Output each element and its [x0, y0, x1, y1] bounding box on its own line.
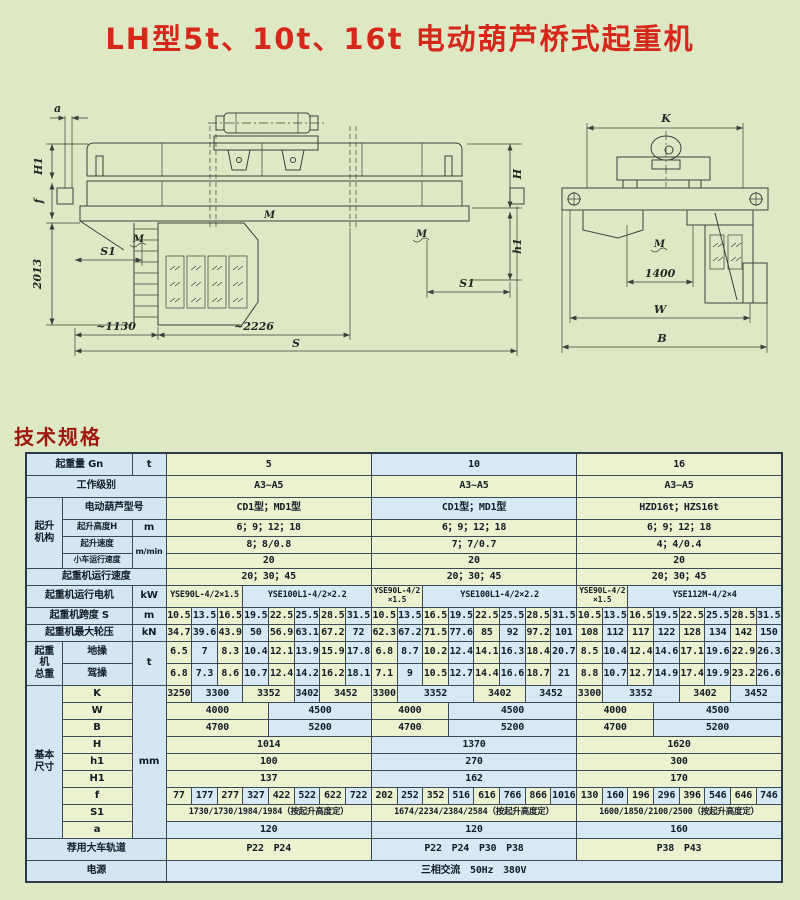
spec-cell-r12c5: 10.7 [243, 663, 269, 685]
spec-cell-r11c12: 6.8 [371, 641, 397, 663]
spec-cell-r10c19: 108 [577, 624, 603, 641]
spec-cell-r10c22: 122 [654, 624, 680, 641]
spec-cell-r10c21: 117 [628, 624, 654, 641]
spec-cell-r15c3: 5200 [269, 719, 372, 736]
spec-cell-r9c5: 16.5 [217, 607, 243, 624]
spec-cell-r21c3: 120 [371, 821, 576, 838]
dim-label-h1: h1 [511, 238, 524, 254]
spec-cell-r6c4: 20 [577, 553, 782, 568]
spec-cell-r12c15: 16.6 [500, 663, 526, 685]
spec-cell-r21c1: a [62, 821, 132, 838]
spec-cell-r11c23: 14.6 [654, 641, 680, 663]
spec-cell-r9c19: 10.5 [577, 607, 603, 624]
spec-cell-r10c8: 63.1 [294, 624, 320, 641]
spec-cell-r13c5: 3300 [192, 685, 243, 702]
spec-cell-r10c1: 起重机最大轮压 [26, 624, 132, 641]
spec-cell-r22c3: P22 P24 P30 P38 [371, 838, 576, 860]
spec-cell-r11c9: 13.9 [294, 641, 320, 663]
spec-cell-r17c2: 100 [166, 753, 371, 770]
spec-cell-r19c4: 277 [217, 787, 243, 804]
spec-cell-r10c17: 97.2 [525, 624, 551, 641]
spec-cell-r2c4: A3~A5 [577, 475, 782, 497]
spec-cell-r12c21: 14.9 [654, 663, 680, 685]
spec-cell-r12c16: 18.7 [525, 663, 551, 685]
page-title: LH型5t、10t、16t 电动葫芦桥式起重机 [0, 16, 800, 58]
spec-cell-r10c5: 43.9 [217, 624, 243, 641]
spec-cell-r16c1: H [62, 736, 132, 753]
spec-cell-r9c12: 13.5 [397, 607, 423, 624]
spec-cell-r9c9: 28.5 [320, 607, 346, 624]
crane-end-view-drawing: K M 1400 W B [548, 95, 798, 405]
spec-cell-r11c13: 8.7 [397, 641, 423, 663]
spec-cell-r19c10: 202 [371, 787, 397, 804]
spec-cell-r8c7: YSE90L-4/2 ×1.5 [577, 585, 628, 607]
spec-cell-r10c18: 101 [551, 624, 577, 641]
spec-cell-r22c1: 荐用大车轨道 [26, 838, 166, 860]
spec-cell-r9c13: 16.5 [423, 607, 449, 624]
spec-cell-r22c2: P22 P24 [166, 838, 371, 860]
spec-cell-r11c24: 17.1 [679, 641, 705, 663]
dim-label-1400: 1400 [645, 267, 676, 280]
spec-cell-r13c8: 3452 [320, 685, 371, 702]
spec-cell-r11c2: 地操 [62, 641, 132, 663]
spec-cell-r19c21: 296 [654, 787, 680, 804]
hoist-trolley [208, 113, 326, 170]
spec-cell-r16c4: 1620 [577, 736, 782, 753]
spec-cell-r20c2: 1730/1730/1984/1984（按起升高度定） [166, 804, 371, 821]
spec-cell-r11c4: 6.5 [166, 641, 192, 663]
spec-cell-r9c7: 22.5 [269, 607, 295, 624]
spec-body: 起重量 Gnt51016工作级别A3~A5A3~A5A3~A5起升 机构电动葫芦… [26, 453, 782, 882]
spec-cell-r12c11: 9 [397, 663, 423, 685]
spec-cell-r19c9: 722 [346, 787, 372, 804]
spec-cell-r11c27: 26.3 [756, 641, 782, 663]
spec-cell-r12c3: 7.3 [192, 663, 218, 685]
spec-cell-r9c18: 31.5 [551, 607, 577, 624]
dim-label-W: W [654, 303, 668, 316]
spec-cell-r9c8: 25.5 [294, 607, 320, 624]
spec-cell-r11c21: 10.4 [602, 641, 628, 663]
spec-cell-r5c2: m/min [132, 536, 166, 568]
spec-cell-r19c16: 866 [525, 787, 551, 804]
spec-cell-r12c18: 8.8 [577, 663, 603, 685]
spec-cell-r12c2: 6.8 [166, 663, 192, 685]
spec-cell-r12c25: 26.6 [756, 663, 782, 685]
spec-cell-r17c3: 270 [371, 753, 576, 770]
dim-label-a: a [54, 102, 61, 115]
spec-cell-r12c20: 12.7 [628, 663, 654, 685]
spec-cell-r11c3: t [132, 641, 166, 685]
spec-cell-r18c4: 170 [577, 770, 782, 787]
spec-cell-r10c10: 72 [346, 624, 372, 641]
spec-cell-r15c1: B [62, 719, 132, 736]
spec-cell-r11c16: 14.1 [474, 641, 500, 663]
spec-cell-r12c6: 12.4 [269, 663, 295, 685]
spec-cell-r5c4: 7；7/0.7 [371, 536, 576, 553]
spec-cell-r19c8: 622 [320, 787, 346, 804]
spec-cell-r19c25: 746 [756, 787, 782, 804]
spec-cell-r17c1: h1 [62, 753, 132, 770]
spec-cell-r19c1: f [62, 787, 132, 804]
spec-cell-r19c3: 177 [192, 787, 218, 804]
spec-cell-r20c3: 1674/2234/2384/2584（按起升高度定） [371, 804, 576, 821]
spec-cell-r4c5: 6；9；12；18 [577, 519, 782, 536]
spec-cell-r9c15: 22.5 [474, 607, 500, 624]
spec-cell-r12c8: 16.2 [320, 663, 346, 685]
spec-cell-r13c9: 3300 [371, 685, 397, 702]
spec-cell-r19c11: 252 [397, 787, 423, 804]
spec-cell-r9c4: 13.5 [192, 607, 218, 624]
spec-cell-r11c25: 19.6 [705, 641, 731, 663]
spec-cell-r4c1: 起升高度H [62, 519, 132, 536]
dim-label-S1-left: S1 [100, 245, 116, 258]
spec-cell-r10c24: 134 [705, 624, 731, 641]
spec-cell-r10c13: 71.5 [423, 624, 449, 641]
spec-cell-r9c24: 25.5 [705, 607, 731, 624]
spec-cell-r10c14: 77.6 [448, 624, 474, 641]
spec-cell-r10c4: 39.6 [192, 624, 218, 641]
dim-label-H1: H1 [32, 157, 45, 176]
spec-cell-r6c1: 小车运行速度 [62, 553, 132, 568]
spec-cell-r2c1: 工作级别 [26, 475, 166, 497]
spec-cell-r11c17: 16.3 [500, 641, 526, 663]
spec-cell-r19c23: 546 [705, 787, 731, 804]
spec-cell-r8c6: YSE100L1-4/2×2.2 [423, 585, 577, 607]
spec-cell-r15c5: 5200 [448, 719, 576, 736]
spec-cell-r11c20: 8.5 [577, 641, 603, 663]
spec-cell-r19c19: 160 [602, 787, 628, 804]
dim-label-S: S [292, 337, 300, 350]
spec-cell-r19c12: 352 [423, 787, 449, 804]
spec-cell-r12c4: 8.6 [217, 663, 243, 685]
spec-cell-r15c7: 5200 [654, 719, 782, 736]
spec-cell-r8c3: YSE90L-4/2×1.5 [166, 585, 243, 607]
spec-cell-r14c4: 4000 [371, 702, 448, 719]
spec-cell-r7c4: 20；30；45 [577, 568, 782, 585]
spec-cell-r20c4: 1600/1850/2100/2500（按起升高度定） [577, 804, 782, 821]
spec-cell-r11c1: 起重 机 总重 [26, 641, 62, 685]
spec-cell-r12c17: 21 [551, 663, 577, 685]
spec-cell-r17c4: 300 [577, 753, 782, 770]
dim-label-2013: 2013 [31, 258, 44, 290]
spec-cell-r14c2: 4000 [166, 702, 269, 719]
spec-cell-r5c3: 8；8/0.8 [166, 536, 371, 553]
spec-cell-r19c6: 422 [269, 787, 295, 804]
spec-cell-r1c3: 5 [166, 453, 371, 475]
spec-cell-r22c4: P38 P43 [577, 838, 782, 860]
spec-cell-r10c25: 142 [731, 624, 757, 641]
spec-cell-r7c3: 20；30；45 [371, 568, 576, 585]
spec-cell-r19c18: 130 [577, 787, 603, 804]
spec-cell-r10c26: 150 [756, 624, 782, 641]
spec-cell-r13c13: 3300 [577, 685, 603, 702]
spec-cell-r11c22: 12.4 [628, 641, 654, 663]
spec-cell-r13c15: 3402 [679, 685, 730, 702]
spec-cell-r10c2: kN [132, 624, 166, 641]
spec-cell-r10c15: 85 [474, 624, 500, 641]
spec-cell-r12c14: 14.4 [474, 663, 500, 685]
spec-cell-r5c5: 4；4/0.4 [577, 536, 782, 553]
page: { "page": { "title": "LH型5t、10t、16t 电动葫芦… [0, 0, 800, 900]
spec-cell-r12c22: 17.4 [679, 663, 705, 685]
spec-cell-r10c9: 67.2 [320, 624, 346, 641]
dim-label-1130: ~1130 [96, 320, 136, 333]
spec-cell-r1c1: 起重量 Gn [26, 453, 132, 475]
spec-cell-r12c9: 18.1 [346, 663, 372, 685]
spec-cell-r11c8: 12.1 [269, 641, 295, 663]
spec-cell-r10c16: 92 [500, 624, 526, 641]
spec-cell-r11c26: 22.9 [731, 641, 757, 663]
spec-cell-r10c20: 112 [602, 624, 628, 641]
spec-cell-r21c2: 120 [166, 821, 371, 838]
spec-cell-r4c2: m [132, 519, 166, 536]
spec-cell-r11c7: 10.4 [243, 641, 269, 663]
spec-cell-r23c2: 三相交流 50Hz 380V [166, 860, 782, 882]
spec-cell-r18c2: 137 [166, 770, 371, 787]
spec-cell-r1c5: 16 [577, 453, 782, 475]
spec-cell-r19c2: 77 [166, 787, 192, 804]
spec-cell-r15c2: 4700 [166, 719, 269, 736]
spec-cell-r19c15: 766 [500, 787, 526, 804]
spec-cell-r14c3: 4500 [269, 702, 372, 719]
spec-cell-r10c23: 128 [679, 624, 705, 641]
spec-cell-r13c4: 3250 [166, 685, 192, 702]
spec-cell-r3c2: 电动葫芦型号 [62, 497, 166, 519]
cabin [134, 223, 258, 325]
spec-cell-r10c11: 62.3 [371, 624, 397, 641]
spec-cell-r12c24: 23.2 [731, 663, 757, 685]
spec-cell-r15c4: 4700 [371, 719, 448, 736]
spec-cell-r19c20: 196 [628, 787, 654, 804]
spec-cell-r5c1: 起升速度 [62, 536, 132, 553]
spec-cell-r19c22: 396 [679, 787, 705, 804]
spec-cell-r10c12: 67.2 [397, 624, 423, 641]
spec-cell-r13c10: 3352 [397, 685, 474, 702]
spec-cell-r3c3: CD1型；MD1型 [166, 497, 371, 519]
spec-cell-r8c8: YSE112M-4/2×4 [628, 585, 782, 607]
spec-cell-r9c3: 10.5 [166, 607, 192, 624]
spec-cell-r2c2: A3~A5 [166, 475, 371, 497]
dim-label-f: f [32, 196, 45, 204]
spec-cell-r9c11: 10.5 [371, 607, 397, 624]
spec-cell-r13c16: 3452 [731, 685, 782, 702]
spec-cell-r7c1: 起重机运行速度 [26, 568, 166, 585]
spec-cell-r13c14: 3352 [602, 685, 679, 702]
spec-cell-r14c5: 4500 [448, 702, 576, 719]
spec-cell-r16c3: 1370 [371, 736, 576, 753]
spec-cell-r3c4: CD1型；MD1型 [371, 497, 576, 519]
spec-cell-r12c13: 12.7 [448, 663, 474, 685]
spec-cell-r23c1: 电源 [26, 860, 166, 882]
spec-cell-r9c26: 31.5 [756, 607, 782, 624]
spec-cell-r12c19: 10.7 [602, 663, 628, 685]
spec-cell-r6c2: 20 [166, 553, 371, 568]
spec-cell-r11c10: 15.9 [320, 641, 346, 663]
spec-cell-r4c3: 6；9；12；18 [166, 519, 371, 536]
crane-elevation-drawing: a H1 f 2013 S1 M M ~1130 ~2226 S H h1 S1… [12, 88, 552, 423]
spec-cell-r11c5: 7 [192, 641, 218, 663]
spec-cell-r9c10: 31.5 [346, 607, 372, 624]
spec-cell-r8c2: kW [132, 585, 166, 607]
spec-cell-r3c5: HZD16t；HZS16t [577, 497, 782, 519]
spec-cell-r1c4: 10 [371, 453, 576, 475]
spec-cell-r20c1: S1 [62, 804, 132, 821]
spec-table: 起重量 Gnt51016工作级别A3~A5A3~A5A3~A5起升 机构电动葫芦… [25, 452, 783, 883]
dim-label-H: H [511, 168, 524, 180]
spec-cell-r14c6: 4000 [577, 702, 654, 719]
spec-cell-r10c3: 34.7 [166, 624, 192, 641]
spec-cell-r9c25: 28.5 [731, 607, 757, 624]
spec-cell-r16c2: 1014 [166, 736, 371, 753]
spec-cell-r19c7: 522 [294, 787, 320, 804]
spec-cell-r18c1: H1 [62, 770, 132, 787]
spec-cell-r12c23: 19.9 [705, 663, 731, 685]
spec-cell-r19c24: 646 [731, 787, 757, 804]
spec-cell-r14c1: W [62, 702, 132, 719]
spec-cell-r11c18: 18.4 [525, 641, 551, 663]
spec-cell-r19c14: 616 [474, 787, 500, 804]
spec-cell-r9c16: 25.5 [500, 607, 526, 624]
spec-cell-r6c3: 20 [371, 553, 576, 568]
spec-cell-r11c6: 8.3 [217, 641, 243, 663]
spec-cell-r11c14: 10.2 [423, 641, 449, 663]
spec-cell-r10c6: 50 [243, 624, 269, 641]
spec-cell-r1c2: t [132, 453, 166, 475]
spec-cell-r10c7: 56.9 [269, 624, 295, 641]
mark-M2: M [263, 210, 276, 221]
spec-cell-r9c14: 19.5 [448, 607, 474, 624]
spec-cell-r12c1: 驾操 [62, 663, 132, 685]
spec-cell-r9c22: 19.5 [654, 607, 680, 624]
spec-cell-r4c4: 6；9；12；18 [371, 519, 576, 536]
section-heading: 技术规格 [14, 421, 102, 450]
dim-label-K: K [660, 112, 671, 125]
spec-cell-r11c15: 12.4 [448, 641, 474, 663]
spec-cell-r18c3: 162 [371, 770, 576, 787]
spec-cell-r19c13: 516 [448, 787, 474, 804]
dimensions-left: a H1 f 2013 S1 M M ~1130 ~2226 S H h1 S1… [31, 102, 524, 356]
spec-cell-r13c3: mm [132, 685, 166, 838]
spec-cell-r9c23: 22.5 [679, 607, 705, 624]
spec-cell-r9c2: m [132, 607, 166, 624]
spec-cell-r19c17: 1016 [551, 787, 577, 804]
spec-cell-r13c1: 基本 尺寸 [26, 685, 62, 838]
dim-label-B: B [656, 332, 666, 345]
spec-cell-r13c2: K [62, 685, 132, 702]
spec-cell-r13c11: 3402 [474, 685, 525, 702]
spec-cell-r13c6: 3352 [243, 685, 294, 702]
dim-label-S1-right: S1 [459, 277, 475, 290]
spec-cell-r9c6: 19.5 [243, 607, 269, 624]
spec-cell-r21c4: 160 [577, 821, 782, 838]
spec-cell-r11c19: 20.7 [551, 641, 577, 663]
spec-cell-r9c17: 28.5 [525, 607, 551, 624]
spec-cell-r13c7: 3402 [294, 685, 320, 702]
spec-cell-r2c3: A3~A5 [371, 475, 576, 497]
spec-cell-r8c1: 起重机运行电机 [26, 585, 132, 607]
spec-cell-r9c20: 13.5 [602, 607, 628, 624]
spec-cell-r12c7: 14.2 [294, 663, 320, 685]
spec-cell-r11c11: 17.8 [346, 641, 372, 663]
spec-cell-r15c6: 4700 [577, 719, 654, 736]
spec-cell-r12c12: 10.5 [423, 663, 449, 685]
spec-cell-r8c5: YSE90L-4/2 ×1.5 [371, 585, 422, 607]
spec-cell-r7c2: 20；30；45 [166, 568, 371, 585]
spec-cell-r19c5: 327 [243, 787, 269, 804]
spec-cell-r13c12: 3452 [525, 685, 576, 702]
spec-cell-r9c1: 起重机跨度 S [26, 607, 132, 624]
spec-cell-r3c1: 起升 机构 [26, 497, 62, 568]
spec-cell-r14c7: 4500 [654, 702, 782, 719]
spec-cell-r8c4: YSE100L1-4/2×2.2 [243, 585, 371, 607]
dim-label-2226: ~2226 [234, 320, 274, 333]
spec-cell-r9c21: 16.5 [628, 607, 654, 624]
spec-cell-r12c10: 7.1 [371, 663, 397, 685]
